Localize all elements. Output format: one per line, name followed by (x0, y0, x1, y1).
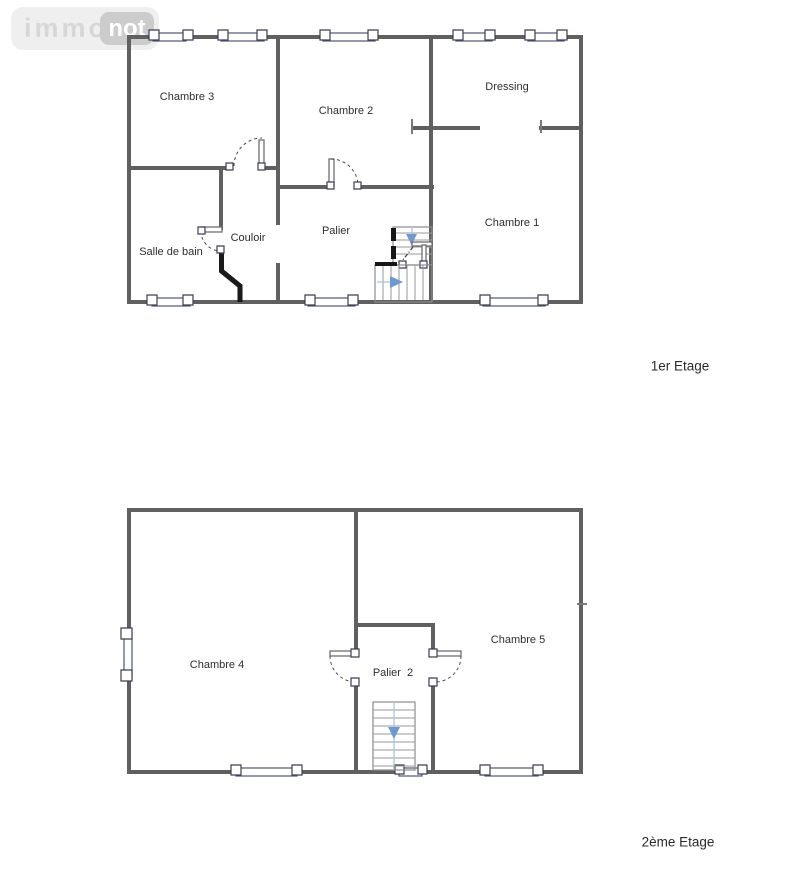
wall-segment (429, 35, 433, 130)
room-label-chambre-4: Chambre 4 (190, 659, 244, 671)
black-wall (375, 262, 397, 266)
door-leaf (422, 245, 426, 263)
door-swing-arc (234, 138, 262, 166)
wall-segment (411, 126, 480, 130)
room-label-dressing: Dressing (485, 81, 528, 93)
stairs-down-arrow-icon (388, 727, 400, 739)
wall-segment (276, 35, 280, 225)
stairs-direction-arrow-icon (390, 276, 403, 288)
wall-segment (276, 263, 280, 304)
wall-segment (219, 168, 223, 230)
wall-segment (579, 508, 583, 774)
wall-tick (411, 119, 413, 134)
wall-segment (431, 684, 435, 774)
room-label-palier: Palier (322, 225, 350, 237)
wall-tick (577, 603, 587, 605)
floor-2-title: 2ème Etage (642, 835, 715, 850)
window (323, 33, 375, 41)
wall-segment (127, 166, 230, 170)
room-label-couloir: Couloir (231, 232, 266, 244)
floor-plan-drawing (0, 0, 797, 884)
room-label-chambre-3: Chambre 3 (160, 91, 214, 103)
room-label-palier-2: Palier 2 (373, 667, 413, 679)
wall-segment (354, 508, 358, 627)
room-label-chambre-1: Chambre 1 (485, 217, 539, 229)
window (483, 298, 545, 306)
door-jamb (351, 649, 359, 686)
wall-tick (540, 120, 542, 133)
floor-plan-page: immo not (0, 0, 797, 884)
wall-segment (357, 185, 434, 189)
wall-segment (354, 623, 435, 627)
wall-segment (276, 185, 331, 189)
wall-segment (539, 126, 583, 130)
door-jamb (327, 182, 361, 189)
room-label-chambre-2: Chambre 2 (319, 105, 373, 117)
door-jamb (429, 649, 437, 686)
door-swing-arc (435, 656, 461, 682)
room-label-salle-de-bain: Salle de bain (139, 246, 203, 258)
door-leaf (435, 651, 461, 656)
door-jamb (226, 163, 265, 170)
floor-1-plan (127, 30, 583, 306)
room-label-chambre-5: Chambre 5 (491, 634, 545, 646)
black-wall (391, 246, 396, 259)
floor-1-title: 1er Etage (651, 359, 710, 374)
window (236, 768, 297, 776)
black-wall (391, 228, 396, 241)
wall-segment (579, 35, 583, 304)
wall-segment (354, 684, 358, 774)
window (485, 768, 538, 776)
black-wall (222, 251, 241, 302)
